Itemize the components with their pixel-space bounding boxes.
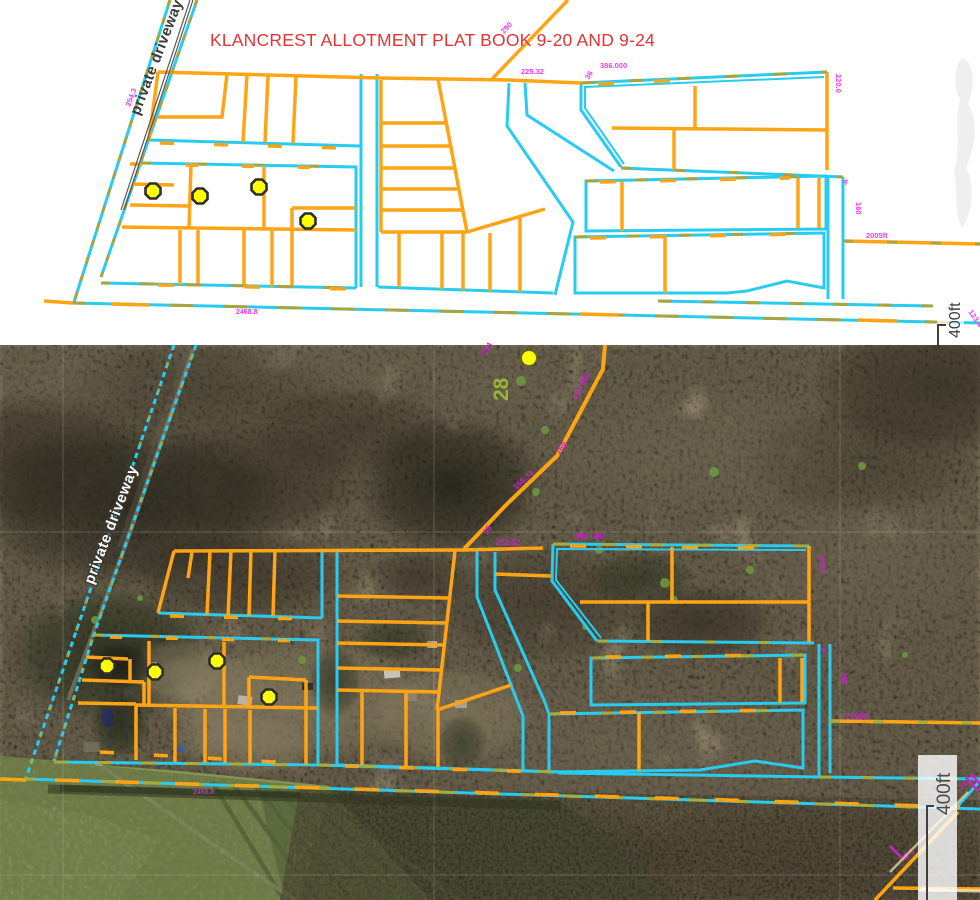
svg-text:306.000: 306.000 [575,532,604,541]
svg-text:220.0: 220.0 [834,74,843,93]
svg-text:28: 28 [490,377,513,401]
svg-text:2468.8: 2468.8 [236,309,258,316]
svg-text:252.32: 252.32 [496,538,521,547]
svg-text:2005ft: 2005ft [866,231,888,240]
svg-text:KLANCREST ALLOTMENT PLAT BOOK: KLANCREST ALLOTMENT PLAT BOOK 9-20 AND 9… [210,30,655,50]
svg-text:225.32: 225.32 [521,67,544,76]
svg-text:386.000: 386.000 [600,61,627,70]
svg-text:160: 160 [839,671,849,686]
svg-text:160: 160 [854,202,863,215]
svg-text:400ft: 400ft [947,302,964,338]
svg-text:2005ft: 2005ft [846,712,869,721]
svg-text:2468.8: 2468.8 [193,789,215,796]
svg-text:400ft: 400ft [934,772,955,815]
